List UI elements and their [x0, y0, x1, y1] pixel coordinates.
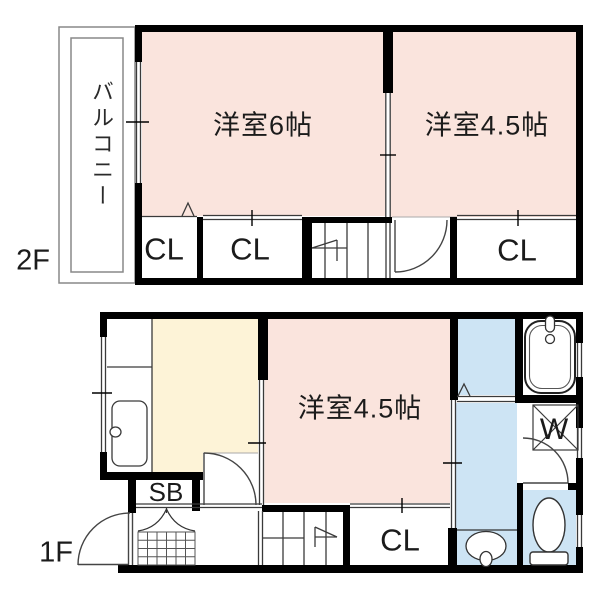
room-label-1f-western-4-5: 洋室4.5帖: [298, 396, 423, 423]
stairs-2f: [312, 223, 368, 278]
floor-label-1f: 1F: [39, 539, 73, 568]
entrance-door: [78, 513, 133, 565]
bathtub: [525, 316, 575, 393]
room-label-2f-western-6: 洋室6帖: [213, 113, 313, 140]
floor-1f-plan: [78, 312, 583, 573]
floor-label-2f: 2F: [16, 247, 50, 276]
room-label-2f-western-4-5: 洋室4.5帖: [425, 113, 550, 140]
closet-label-2f-3: CL: [497, 235, 537, 266]
closet-label-2f-2: CL: [230, 234, 270, 265]
door-2f-hall: [395, 220, 447, 272]
genkan-tile: [138, 508, 195, 565]
closet-label-1f: CL: [380, 525, 420, 556]
bathroom-fill: [457, 319, 515, 395]
stairs-1f: [262, 512, 337, 565]
door-kitchen-hall: [204, 453, 256, 505]
balcony-label: バルコニー: [90, 80, 112, 210]
washer-label: W: [540, 415, 568, 445]
kitchen-faucet: [110, 427, 121, 437]
room-fills-1f: [152, 319, 576, 565]
floor-plan-canvas: バルコニー 洋室6帖 洋室4.5帖 CL CL CL 2F 洋室4.5帖 SB …: [0, 0, 600, 600]
kitchen-counter: [107, 319, 152, 472]
closet-label-2f-1: CL: [144, 234, 184, 265]
kitchen-dining-fill: [152, 319, 258, 453]
shoe-box-label: SB: [149, 479, 184, 505]
bath-faucet: [546, 316, 555, 332]
